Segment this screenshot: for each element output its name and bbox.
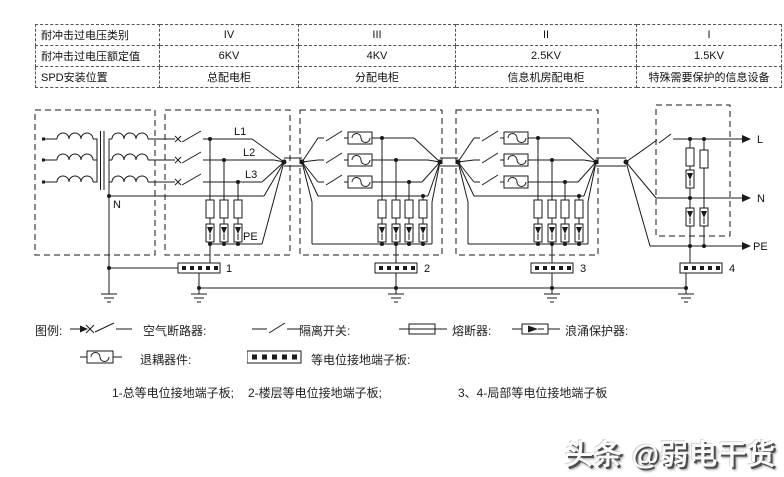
- phase-label-l2: L2: [243, 147, 255, 159]
- ground-symbol: [191, 294, 207, 302]
- spd-schematic-page: 耐冲击过电压类别 IV III II I 耐冲击过电压额定值 6KV 4KV 2…: [0, 0, 784, 477]
- fuse-spd-column: [575, 200, 583, 244]
- surge-protector: [686, 170, 694, 188]
- fuse: [700, 150, 708, 168]
- fuse-spd-column: [534, 200, 542, 244]
- breaker-icon: [70, 320, 134, 338]
- table-row: SPD安装位置 总配电柜 分配电柜 信息机房配电柜 特殊需要保护的信息设备: [36, 67, 782, 88]
- legend-fuse-label: 熔断器:: [452, 322, 491, 339]
- rating-cell: 1.5KV: [637, 46, 782, 67]
- ground-symbol: [101, 294, 117, 302]
- surge-protector: [686, 208, 694, 226]
- terminal-board-icon: [247, 350, 303, 364]
- isolator-decoupler-branch: [318, 175, 378, 188]
- terminal-board: [375, 263, 417, 273]
- isolator-decoupler-branch: [474, 131, 534, 144]
- row-label-location: SPD安装位置: [36, 67, 160, 88]
- row-label-category: 耐冲击过电压类别: [36, 25, 160, 46]
- fuse-spd-column: [234, 200, 242, 244]
- location-cell: 特殊需要保护的信息设备: [637, 67, 782, 88]
- info-room-circuit: [458, 131, 596, 263]
- fuse-spd-column: [378, 200, 386, 244]
- terminal-board: [531, 263, 573, 273]
- decoupler-icon: [80, 348, 124, 366]
- surge-protector: [700, 208, 708, 226]
- output-label-pe: PE: [753, 241, 768, 253]
- surge-protector-icon: [512, 321, 562, 337]
- legend-note-1: 1-总等电位接地端子板;: [112, 384, 234, 401]
- category-cell: II: [456, 25, 637, 46]
- fuse-spd-column: [220, 200, 228, 244]
- ground-symbol: [388, 294, 404, 302]
- cable-link: [594, 158, 629, 166]
- location-cell: 总配电柜: [160, 67, 299, 88]
- fuse-icon: [399, 321, 449, 337]
- legend-note-3: 3、4-局部等电位接地端子板: [458, 384, 607, 401]
- legend-breaker-label: 空气断路器:: [143, 322, 206, 339]
- location-cell: 信息机房配电柜: [456, 67, 637, 88]
- isolator-icon: [252, 321, 304, 337]
- isolator-decoupler-branch: [474, 175, 534, 188]
- terminal-board-number-4: 4: [729, 263, 735, 275]
- rating-cell: 4KV: [299, 46, 456, 67]
- phase-label-l1: L1: [234, 126, 246, 138]
- air-breaker: [175, 131, 201, 185]
- legend-decoupler-label: 退耦器件:: [140, 351, 191, 368]
- location-cell: 分配电柜: [299, 67, 456, 88]
- transformer: [42, 131, 148, 198]
- cable-link: [282, 158, 305, 166]
- watermark: 头条 @弱电干货: [565, 433, 776, 473]
- category-cell: III: [299, 25, 456, 46]
- category-cell: I: [637, 25, 782, 46]
- terminal-board-number-2: 2: [424, 263, 430, 275]
- neutral-label: N: [113, 199, 121, 211]
- fuse-spd-column: [561, 200, 569, 244]
- main-distribution-circuit: [109, 131, 284, 263]
- output-label-n: N: [757, 193, 765, 205]
- fuse-spd-column: [548, 200, 556, 244]
- terminal-board-number-1: 1: [226, 263, 232, 275]
- fuse-spd-column: [419, 200, 427, 244]
- pe-label: PE: [243, 231, 258, 243]
- terminal-board: [680, 263, 722, 273]
- terminal-board-number-3: 3: [580, 263, 586, 275]
- legend-isolator-label: 隔离开关:: [299, 322, 350, 339]
- phase-label-l3: L3: [245, 169, 257, 181]
- grounding-network: [101, 196, 722, 302]
- legend-note-2: 2-楼层等电位接地端子板;: [248, 384, 382, 401]
- category-cell: IV: [160, 25, 299, 46]
- rating-cell: 6KV: [160, 46, 299, 67]
- legend-board-label: 等电位接地端子板:: [311, 351, 410, 368]
- cable-link: [438, 158, 461, 166]
- fuse-spd-column: [206, 200, 214, 244]
- fuse-spd-column: [405, 200, 413, 244]
- circuit-schematic: N L1 L2 L3 PE: [0, 98, 784, 312]
- row-label-rating: 耐冲击过电压额定值: [36, 46, 160, 67]
- legend-title: 图例:: [35, 322, 62, 339]
- ground-symbol: [544, 294, 560, 302]
- protected-equipment-circuit: [626, 134, 751, 263]
- rating-cell: 2.5KV: [456, 46, 637, 67]
- fuse: [686, 148, 694, 166]
- terminal-board: [178, 263, 220, 273]
- legend-spd-label: 浪涌保护器:: [565, 322, 628, 339]
- isolator-decoupler-branch: [318, 153, 378, 166]
- fuse-spd-column: [392, 200, 400, 244]
- sub-distribution-circuit: [302, 131, 440, 263]
- voltage-category-table: 耐冲击过电压类别 IV III II I 耐冲击过电压额定值 6KV 4KV 2…: [35, 24, 782, 88]
- table-row: 耐冲击过电压类别 IV III II I: [36, 25, 782, 46]
- table-row: 耐冲击过电压额定值 6KV 4KV 2.5KV 1.5KV: [36, 46, 782, 67]
- ground-symbol: [678, 294, 694, 302]
- isolator-decoupler-branch: [474, 153, 534, 166]
- isolator-decoupler-branch: [318, 131, 378, 144]
- output-label-l: L: [757, 134, 763, 146]
